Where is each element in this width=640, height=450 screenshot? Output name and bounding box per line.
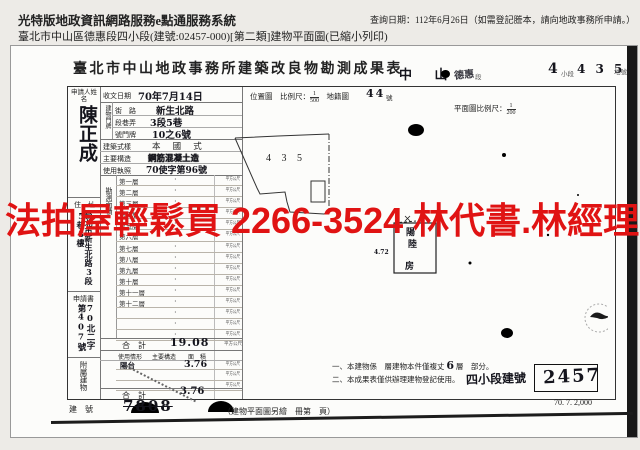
query-date-note: 查詢日期：112年6月26日（如需登記謄本，請向地政事務所申請。） <box>370 13 635 26</box>
floor-dot: · <box>174 253 177 262</box>
cadastral-map-suffix: 號 <box>386 92 393 102</box>
four-subsection-label: 四小段建號 <box>466 369 527 388</box>
title-stamp-subsection: 4 <box>548 61 558 77</box>
title-section-hand: 德惠 <box>453 65 474 82</box>
build-no-label: 建 號 <box>69 404 93 415</box>
title-stamp-suffix: 地號 <box>614 66 627 76</box>
stamp-mark <box>585 304 608 332</box>
floor-dot: · <box>174 319 177 328</box>
watermark-ad-text: 法拍屋輕鬆買 2266-3524 林代書.林經理 <box>5 192 639 244</box>
floor-label: 第十層 <box>119 276 139 286</box>
applicant-label: 申請人姓名 <box>69 89 99 103</box>
cadastral-map-label: 地籍圖 <box>327 92 350 101</box>
annex-unit: 平方公尺 <box>226 371 240 377</box>
note-2: 二、本成果表僅供辦理建物登記使用。 <box>332 374 460 385</box>
ink-blob <box>441 70 450 78</box>
applicant-name: 陳正成 <box>74 105 101 197</box>
system-title: 光特版地政資訊網路服務e點通服務系統 <box>18 10 236 29</box>
received-label: 收文日期 <box>103 91 131 101</box>
floor-label: 第七層 <box>119 243 139 253</box>
annex-unit: 平方公尺 <box>226 361 240 367</box>
floor-label: 第八層 <box>119 254 139 264</box>
annex-unit: 平方公尺 <box>226 382 240 388</box>
form-title: 臺北市中山地政事務所建築改良物勘測成果表 <box>73 58 403 78</box>
application-label: 申請書 <box>73 294 94 304</box>
floor-dot: · <box>174 264 177 273</box>
location-scale-num: 1 <box>313 91 316 97</box>
page: { "header": { "system_name": "光特版地政資訊網路服… <box>0 0 640 450</box>
door-group-label: 建物門牌 <box>103 105 112 139</box>
floor-dot: · <box>174 286 177 295</box>
document-description: 臺北市中山區德惠段四小段(建號:02457-000)[第二類]建物平面圖(已縮小… <box>18 28 388 44</box>
divider <box>112 102 113 139</box>
application-no: 70北二字第407號 <box>76 304 94 354</box>
print-code: 70. 7. 2,000 <box>554 398 592 407</box>
divider <box>68 291 100 292</box>
location-map-label: 位置圖 比例尺：1500 地籍圖 <box>250 91 349 104</box>
four-subsection-box: 2457 <box>534 364 598 392</box>
cadastral-map-no: 44 <box>366 87 385 100</box>
floor-dot: · <box>174 308 177 317</box>
title-stamp-mid: 小段 <box>561 68 574 78</box>
annex-side-label: 附屬建物 <box>78 361 89 397</box>
floor-label: 第十一層 <box>119 287 145 297</box>
floor-label: 第一層 <box>119 176 139 186</box>
floor-label: 第九層 <box>119 265 139 275</box>
lot-number-label: 4 3 5 <box>266 153 306 164</box>
floor-total-value: 19.08 <box>170 336 209 349</box>
plan-scale-label: 平面圖比例尺： <box>454 104 507 113</box>
bottom-note: （建物平面圖另繪 冊第 頁） <box>223 406 335 417</box>
received-value: 70年7月14日 <box>138 88 203 103</box>
location-scale-den: 500 <box>310 97 319 104</box>
divider <box>68 357 100 358</box>
annex-table: 陽台 3.76 平方公尺 平方公尺 平方公尺 <box>116 360 242 391</box>
floor-dot: · <box>174 175 177 184</box>
four-subsection-value: 2457 <box>542 364 601 388</box>
annex-area: 3.76 <box>184 359 207 370</box>
note-1b: 層建物本件僅複丈 <box>385 362 445 371</box>
title-section-suffix: 段 <box>475 71 482 81</box>
annex-total-value: 3.76 <box>180 386 204 397</box>
floor-dot: · <box>174 297 177 306</box>
location-scale-label: 位置圖 比例尺： <box>250 92 310 101</box>
plan-dimension: 4.72 <box>374 249 389 256</box>
divider <box>100 350 242 351</box>
note-1a: 一、本建物係 <box>332 362 377 371</box>
room-char-3: 房 <box>405 259 414 272</box>
plan-scale-num: 1 <box>510 103 513 109</box>
floor-dot: · <box>174 275 177 284</box>
divider <box>100 388 242 389</box>
note-1c: 層 <box>456 362 464 371</box>
build-no-value: 7808 <box>123 397 173 415</box>
note-1-hand: 6 <box>446 359 454 372</box>
floor-label: 第十二層 <box>119 298 145 308</box>
location-scale-fraction: 1500 <box>310 91 319 104</box>
